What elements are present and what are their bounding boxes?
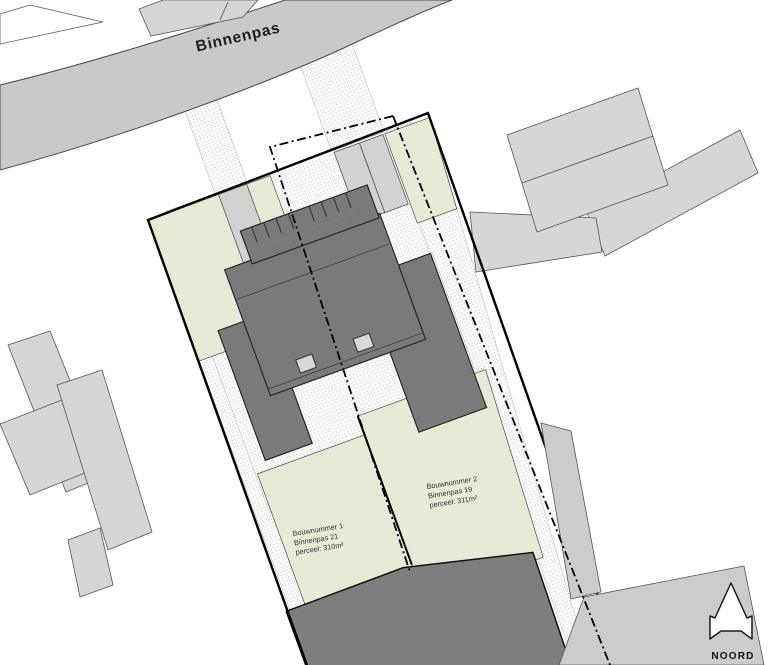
north-label: NOORD bbox=[711, 651, 754, 662]
neighbor-building-northeast bbox=[470, 88, 758, 272]
neighbor-nw-fragment bbox=[0, 5, 103, 44]
neighbor-building-southwest bbox=[0, 331, 152, 597]
site-plan-canvas: Binnenpas bbox=[0, 0, 768, 665]
site-plan: Binnenpas bbox=[0, 0, 768, 665]
